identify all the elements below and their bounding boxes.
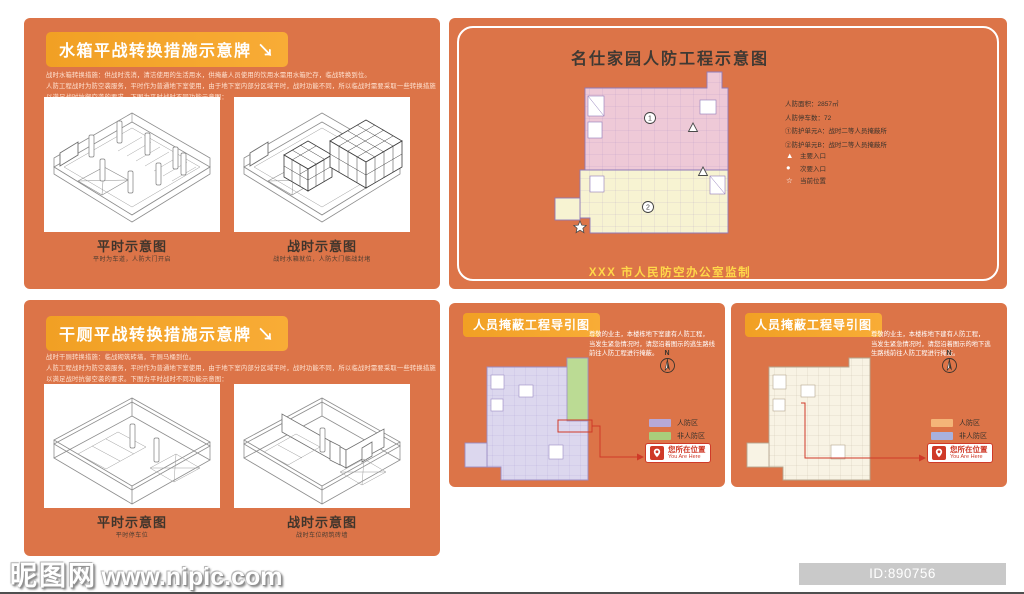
non-civil-defense-zone-swatch	[931, 432, 953, 440]
diagram-subcaption: 平时停车位	[44, 530, 220, 539]
legend-row: ☆ 当前位置	[786, 174, 826, 187]
svg-text:2: 2	[646, 205, 650, 212]
notice-line: 当发生紧急情况时，请您沿着图示的地下逃	[871, 340, 995, 350]
current-location-icon: ☆	[786, 176, 800, 185]
dry-toilet-panel: 干厕平战转换措施示意牌 ↘ 战时干厕转换措施：临战砌筑砖墙，干厕马桶到位。 人防…	[24, 300, 440, 556]
civil-defense-zone-swatch	[649, 419, 671, 427]
legend-row: 非人防区	[931, 429, 987, 442]
guide-panel-left: 人员掩蔽工程导引图 尊敬的业主，本楼栋地下室建有人防工程， 当发生紧急情况时，请…	[449, 303, 725, 487]
notice-line: 尊敬的业主，本楼栋地下室建有人防工程，	[589, 330, 713, 340]
compass-icon	[659, 357, 676, 374]
poster-page: 水箱平战转换措施示意牌 ↘ 战时水箱转换措施：供战时洗消，清洁使用的生活用水，供…	[0, 0, 1024, 594]
water-tank-title-badge: 水箱平战转换措施示意牌 ↘	[46, 32, 288, 67]
peacetime-room-diagram-box	[44, 384, 220, 508]
overview-title: 名仕家园人防工程示意图	[510, 45, 830, 69]
location-pin-icon	[650, 446, 664, 460]
isometric-garage-peacetime	[44, 97, 220, 232]
legend-label: 非人防区	[959, 431, 987, 441]
legend-row: 非人防区	[649, 429, 705, 442]
guide-floor-plan-right	[741, 355, 875, 481]
main-entrance-icon: ▲	[786, 151, 800, 160]
site-logo: 昵图网	[10, 561, 97, 591]
dry-toilet-body: 战时干厕转换措施：临战砌筑砖墙，干厕马桶到位。 人防工程战时为防空袭服务，平时作…	[46, 352, 436, 385]
diagram-subcaption: 战时水箱就位，人防大门临战封堵	[234, 254, 410, 263]
diagram-caption: 战时示意图	[234, 512, 410, 531]
north-indicator: N	[936, 350, 962, 379]
diagram-caption: 战时示意图	[234, 236, 410, 255]
svg-text:1: 1	[648, 116, 652, 123]
wartime-garage-diagram-box	[234, 97, 410, 232]
body-line: 战时水箱转换措施：供战时洗消，清洁使用的生活用水，供掩蔽人员使用的饮用水需用水箱…	[46, 70, 436, 81]
notice-line: 当发生紧急情况时，请您沿着图示的逃生路线	[589, 340, 713, 350]
notice-line: 生路线前往人防工程进行掩蔽。	[871, 349, 995, 359]
guide-notice: 尊敬的业主，本楼栋地下室建有人防工程， 当发生紧急情况时，请您沿着图示的逃生路线…	[589, 330, 713, 359]
diagram-subcaption: 平时为车道，人防大门开启	[44, 254, 220, 263]
legend-label: 次要入口	[800, 163, 826, 173]
zone-legend: 人防区 非人防区	[931, 416, 987, 442]
north-label: N	[654, 350, 680, 357]
you-are-here-badge: 您所在位置 You Are Here	[927, 443, 993, 463]
peacetime-garage-diagram-box	[44, 97, 220, 232]
legend-row: 人防区	[649, 416, 705, 429]
current-location-star	[574, 221, 586, 233]
north-indicator: N	[654, 350, 680, 379]
legend-label: 主要入口	[800, 150, 826, 160]
stat-line: ①防护单元A：战时二等人员掩蔽所	[785, 125, 887, 139]
legend-label: 非人防区	[677, 431, 705, 441]
isometric-room-peacetime	[44, 384, 220, 508]
you-are-here-badge: 您所在位置 You Are Here	[645, 443, 711, 463]
stat-line: 人防面积：2857㎡	[785, 98, 887, 112]
overview-footer: XXX 市人民防空办公室监制	[515, 264, 825, 280]
dry-toilet-title-badge: 干厕平战转换措施示意牌 ↘	[46, 316, 288, 351]
notice-line: 尊敬的业主，本楼栋地下建有人防工程，	[871, 330, 995, 340]
image-id-badge: ID:890756 NO:20210819134146272101	[799, 563, 1006, 585]
isometric-room-wartime	[234, 384, 410, 508]
secondary-entrance-icon: ●	[786, 163, 800, 172]
diagram-subcaption: 战时车位砌筑砖墙	[234, 530, 410, 539]
guide-floor-plan-left	[459, 355, 593, 481]
wartime-room-diagram-box	[234, 384, 410, 508]
watermark: 昵图网 www.nipic.com	[10, 554, 283, 593]
guide-title-badge: 人员掩蔽工程导引图	[745, 313, 882, 337]
body-line: 战时干厕转换措施：临战砌筑砖墙，干厕马桶到位。	[46, 352, 436, 363]
location-pin-icon	[932, 446, 946, 460]
north-label: N	[936, 350, 962, 357]
water-tank-panel: 水箱平战转换措施示意牌 ↘ 战时水箱转换措施：供战时洗消，清洁使用的生活用水，供…	[24, 18, 440, 289]
stat-line: 人防停车数：72	[785, 112, 887, 126]
legend-label: 当前位置	[800, 175, 826, 185]
legend-row: 人防区	[931, 416, 987, 429]
guide-title-badge: 人员掩蔽工程导引图	[463, 313, 600, 337]
you-are-here-text: 您所在位置 You Are Here	[950, 446, 988, 460]
site-url: www.nipic.com	[101, 563, 282, 591]
body-line: 人防工程战时为防空袭服务，平时作为普通地下室使用，由于地下室内部分区域平时，战时…	[46, 81, 436, 92]
legend-row: ● 次要入口	[786, 162, 826, 175]
legend-label: 人防区	[959, 418, 980, 428]
legend-row: ▲ 主要入口	[786, 149, 826, 162]
legend-label: 人防区	[677, 418, 698, 428]
notice-line: 前往人防工程进行掩蔽。	[589, 349, 713, 359]
you-are-here-text: 您所在位置 You Are Here	[668, 446, 706, 460]
entrance-legend: ▲ 主要入口 ● 次要入口 ☆ 当前位置	[786, 149, 826, 187]
overview-floor-plan: 1 2	[550, 70, 735, 238]
body-line: 人防工程战时为防空袭服务，平时作为普通地下室使用，由于地下室内部分区域平时，战时…	[46, 363, 436, 374]
isometric-garage-wartime	[234, 97, 410, 232]
compass-icon	[941, 357, 958, 374]
diagram-caption: 平时示意图	[44, 236, 220, 255]
guide-notice: 尊敬的业主，本楼栋地下建有人防工程， 当发生紧急情况时，请您沿着图示的地下逃 生…	[871, 330, 995, 359]
diagram-caption: 平时示意图	[44, 512, 220, 531]
non-civil-defense-zone-swatch	[649, 432, 671, 440]
zone-legend: 人防区 非人防区	[649, 416, 705, 442]
overview-panel: 名仕家园人防工程示意图 1	[449, 18, 1007, 289]
overview-stats: 人防面积：2857㎡ 人防停车数：72 ①防护单元A：战时二等人员掩蔽所 ②防护…	[785, 98, 887, 152]
guide-panel-right: 人员掩蔽工程导引图 尊敬的业主，本楼栋地下建有人防工程， 当发生紧急情况时，请您…	[731, 303, 1007, 487]
civil-defense-zone-swatch	[931, 419, 953, 427]
